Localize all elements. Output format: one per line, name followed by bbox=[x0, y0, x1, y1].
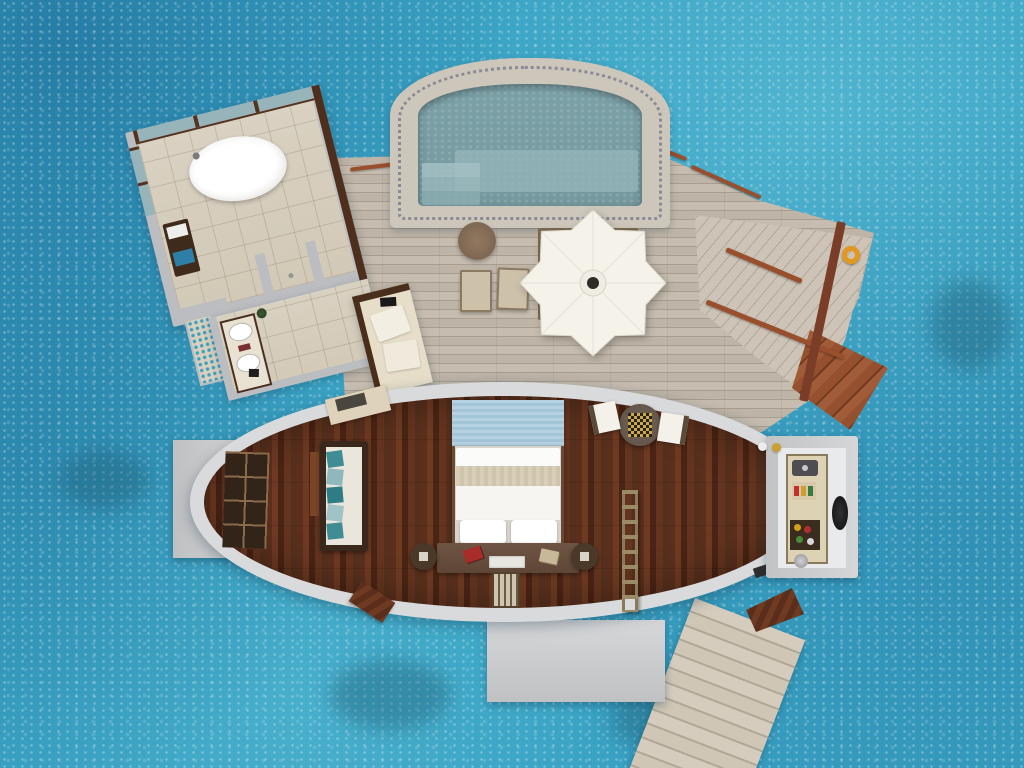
towel-ladder bbox=[622, 490, 638, 612]
bench-tray-item bbox=[380, 297, 397, 307]
bed-headboard-throw bbox=[452, 400, 564, 448]
parasol bbox=[518, 208, 668, 358]
sofa-pillow bbox=[326, 486, 343, 503]
bottom-water-platform bbox=[487, 620, 665, 702]
sofa-daybed bbox=[320, 441, 368, 551]
bed-duvet bbox=[456, 486, 560, 520]
side-table-tray bbox=[580, 552, 589, 561]
chessboard bbox=[628, 413, 652, 437]
niche-sink bbox=[832, 496, 848, 530]
sofa-pillow bbox=[326, 468, 344, 486]
desk-stool bbox=[492, 572, 520, 608]
bottle bbox=[808, 486, 813, 496]
sofa-wood-trim bbox=[310, 452, 319, 516]
hairdryer bbox=[249, 369, 259, 377]
bed-pillow bbox=[460, 520, 506, 544]
sofa-pillow bbox=[326, 504, 344, 522]
bedroom-side-window bbox=[222, 451, 269, 548]
bed-pillow bbox=[511, 520, 557, 544]
coffee-table bbox=[458, 222, 496, 260]
bench-pillow bbox=[370, 304, 412, 342]
side-table bbox=[410, 543, 437, 570]
chess-table bbox=[619, 404, 661, 446]
life-ring bbox=[842, 246, 860, 264]
kettle bbox=[794, 554, 808, 568]
sofa-pillow bbox=[326, 450, 344, 468]
minibar-niche bbox=[766, 436, 858, 578]
snack bbox=[794, 524, 801, 531]
snack bbox=[804, 526, 811, 533]
door-knob bbox=[758, 442, 767, 451]
lounge-chair bbox=[460, 270, 492, 312]
side-table bbox=[571, 543, 598, 570]
side-table-tray bbox=[419, 552, 428, 561]
bottle bbox=[801, 486, 806, 496]
bench-pillow bbox=[383, 339, 421, 372]
bottle bbox=[794, 486, 799, 496]
desk-papers bbox=[489, 556, 525, 568]
water-shadow-patch bbox=[60, 450, 150, 510]
water-shadow-patch bbox=[330, 660, 450, 730]
villa-floorplan-render bbox=[0, 0, 1024, 768]
pool-bench-step bbox=[455, 150, 638, 192]
bottle-row bbox=[792, 482, 816, 500]
door-knob-gold bbox=[772, 443, 781, 452]
king-bed bbox=[452, 446, 564, 548]
snack-tray bbox=[790, 520, 820, 550]
pool-steps bbox=[422, 163, 480, 205]
chess-chair bbox=[657, 412, 689, 445]
coffee-machine bbox=[792, 460, 818, 476]
water-shadow-patch bbox=[930, 280, 1010, 370]
bed-runner bbox=[456, 466, 560, 486]
sofa-pillow bbox=[326, 522, 344, 540]
chess-chair bbox=[588, 401, 620, 435]
snack bbox=[807, 538, 814, 545]
snack bbox=[796, 536, 803, 543]
coffee-machine-dial bbox=[802, 465, 808, 471]
